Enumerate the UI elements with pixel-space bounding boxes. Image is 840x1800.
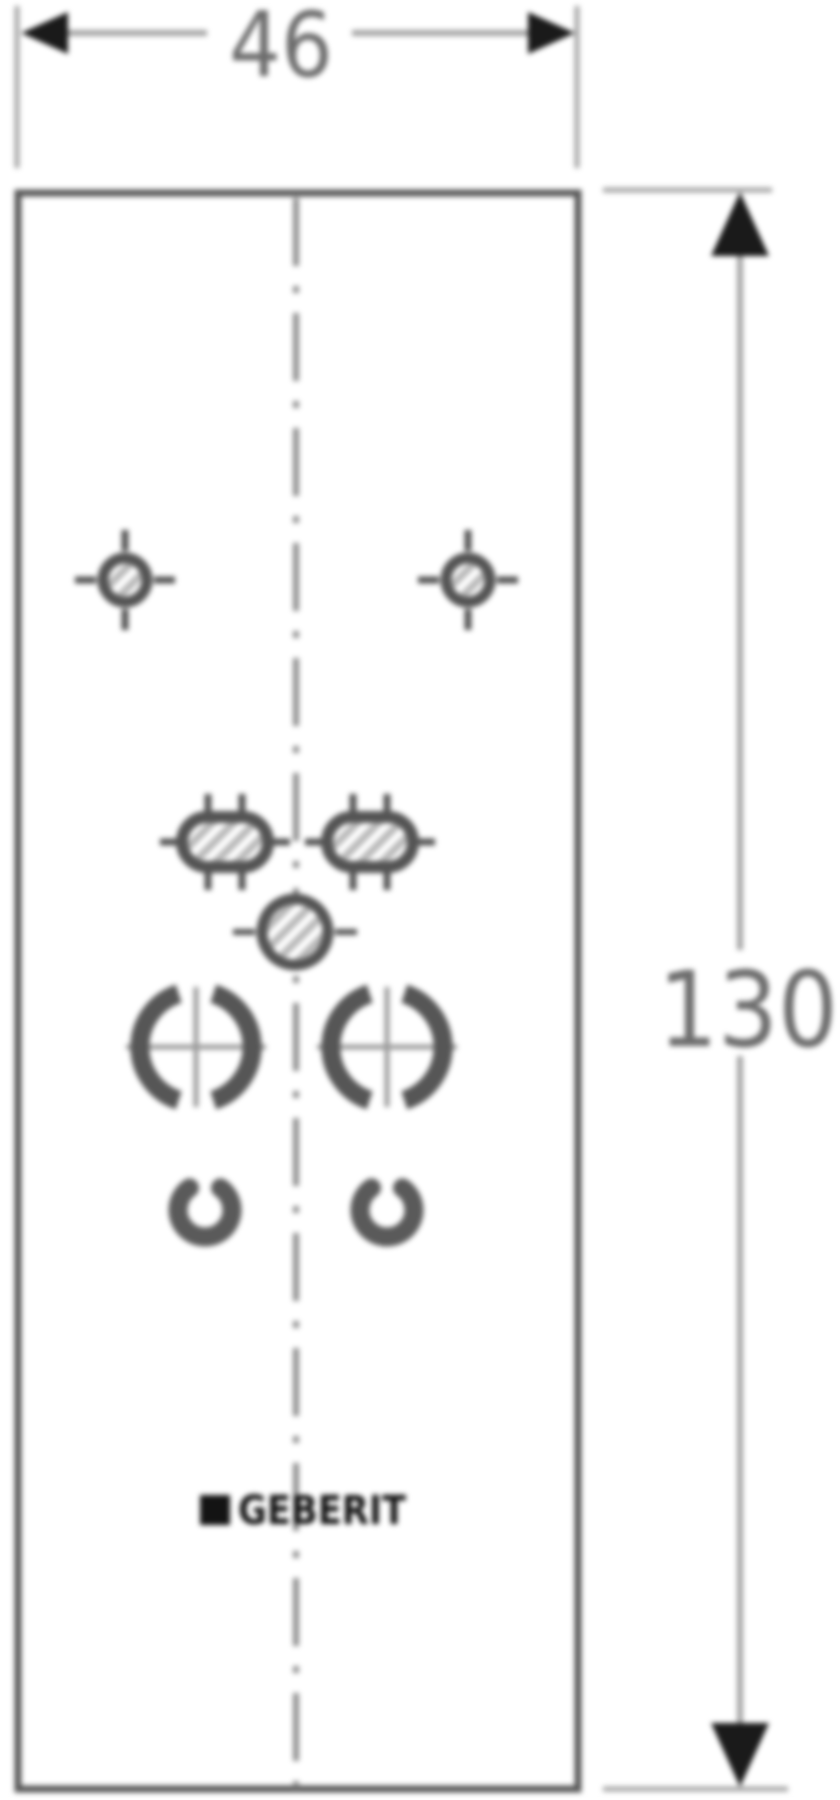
obround-opening bbox=[182, 817, 268, 867]
height-dimension: 130 bbox=[603, 190, 838, 1789]
arrow-up-icon bbox=[711, 192, 769, 256]
height-dimension-label: 130 bbox=[658, 949, 838, 1071]
width-dimension-label: 46 bbox=[229, 0, 333, 98]
circular-opening bbox=[262, 899, 328, 965]
fastening-hole bbox=[103, 558, 147, 602]
arrow-right-icon bbox=[528, 12, 575, 54]
mounting-ring-right-icon bbox=[317, 987, 457, 1107]
width-dimension: 46 bbox=[17, 0, 577, 168]
geberit-logo-square bbox=[200, 1495, 230, 1525]
technical-drawing: 46 130 bbox=[0, 0, 840, 1800]
arrow-left-icon bbox=[21, 12, 68, 54]
geberit-logo-text: GEBERIT bbox=[238, 1488, 407, 1534]
fastening-hole bbox=[446, 558, 490, 602]
mounting-ring-left-icon bbox=[126, 987, 266, 1107]
obround-opening bbox=[327, 817, 413, 867]
drawing-canvas: 46 130 bbox=[0, 0, 840, 1800]
arrow-down-icon bbox=[711, 1723, 769, 1787]
